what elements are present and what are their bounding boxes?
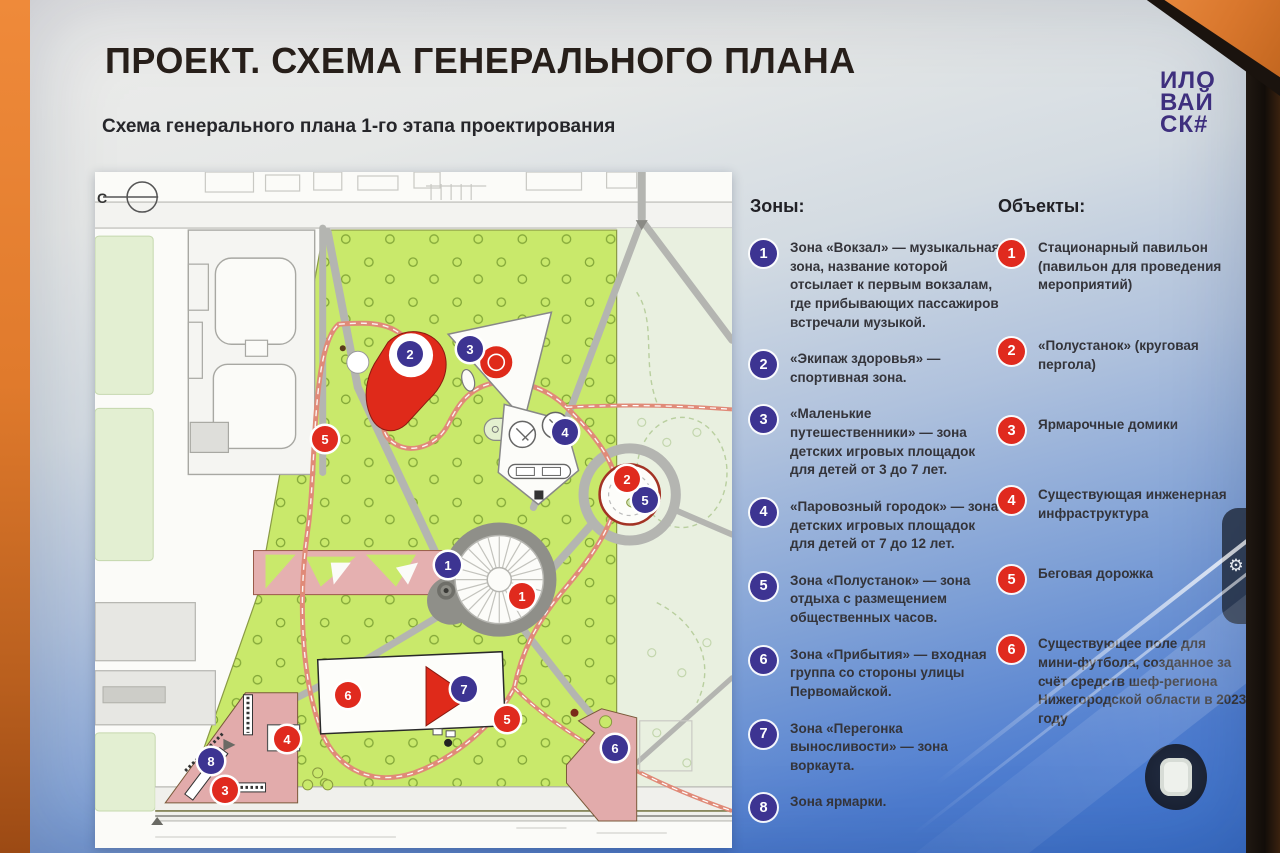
zone-number-badge: 1: [750, 240, 777, 267]
object-description: Стационарный павильон (павильон для пров…: [1038, 239, 1246, 295]
screen-bezel: [1246, 0, 1280, 853]
logo-line-3: СК#: [1160, 114, 1216, 136]
zone-number-badge: 5: [750, 573, 777, 600]
gear-icon: ⚙: [1228, 556, 1243, 576]
object-marker-2: 2: [614, 466, 640, 492]
object-number-badge: 6: [998, 636, 1025, 663]
zone-description: Зона «Перегонка выносливости» — зона вор…: [790, 720, 1000, 776]
zone-number-badge: 4: [750, 499, 777, 526]
zone-number-badge: 7: [750, 721, 777, 748]
zone-marker-1: 1: [435, 552, 461, 578]
home-button[interactable]: [1145, 744, 1207, 810]
legend-object-item: 4 Существующая инженерная инфраструктура: [998, 486, 1246, 523]
object-marker-1: 1: [509, 583, 535, 609]
zone-description: «Паровозный городок» — зона детских игро…: [790, 498, 1000, 554]
zone-description: Зона ярмарки.: [790, 793, 1000, 821]
zone-marker-2: 2: [397, 341, 423, 367]
zone-number-badge: 2: [750, 351, 777, 378]
object-number-badge: 4: [998, 487, 1025, 514]
legend-object-item: 5 Беговая дорожка: [998, 565, 1246, 593]
school-building-block: [188, 230, 314, 474]
zone-description: Зона «Полустанок» — зона отдыха с размещ…: [790, 572, 1000, 628]
object-marker-5: 5: [312, 426, 338, 452]
zone-description: Зона «Вокзал» — музыкальная зона, назван…: [790, 239, 1000, 332]
wall-left: [0, 0, 30, 853]
legend-objects-list: 1 Стационарный павильон (павильон для пр…: [998, 239, 1246, 729]
zone-description: Зона «Прибытия» — входная группа со стор…: [790, 646, 1000, 702]
object-number-badge: 2: [998, 338, 1025, 365]
screen: ПРОЕКТ. СХЕМА ГЕНЕРАЛЬНОГО ПЛАНА Схема г…: [30, 0, 1246, 853]
legend-object-item: 2 «Полустанок» (круговая пергола): [998, 337, 1246, 374]
zone-number-badge: 8: [750, 794, 777, 821]
legend-zone-item: 6 Зона «Прибытия» — входная группа со ст…: [750, 646, 1000, 702]
ilovaisk-logo: ИЛО ВАЙ СК#: [1160, 70, 1216, 136]
object-number-badge: 5: [998, 566, 1025, 593]
legend-object-item: 6 Существующее поле для мини-футбола, со…: [998, 635, 1246, 728]
object-marker-5: 5: [494, 706, 520, 732]
zone-marker-5: 5: [632, 487, 658, 513]
legend-zone-item: 1 Зона «Вокзал» — музыкальная зона, назв…: [750, 239, 1000, 332]
zone-marker-3: 3: [457, 336, 483, 362]
zone-marker-8: 8: [198, 748, 224, 774]
legend-zone-item: 5 Зона «Полустанок» — зона отдыха с разм…: [750, 572, 1000, 628]
zone-number-badge: 3: [750, 406, 777, 433]
svg-text:С: С: [97, 190, 107, 206]
zone-marker-6: 6: [602, 735, 628, 761]
legend-zones: Зоны: 1 Зона «Вокзал» — музыкальная зона…: [750, 196, 1000, 839]
settings-button[interactable]: ⚙: [1222, 508, 1246, 624]
object-description: Беговая дорожка: [1038, 565, 1246, 593]
legend-zone-item: 7 Зона «Перегонка выносливости» — зона в…: [750, 720, 1000, 776]
zone-marker-7: 7: [451, 676, 477, 702]
zone-number-badge: 6: [750, 647, 777, 674]
object-description: Существующее поле для мини-футбола, созд…: [1038, 635, 1246, 728]
legend-zone-item: 3 «Маленькие путешественники» — зона дет…: [750, 405, 1000, 480]
legend-zone-item: 8 Зона ярмарки.: [750, 793, 1000, 821]
photo-frame: ПРОЕКТ. СХЕМА ГЕНЕРАЛЬНОГО ПЛАНА Схема г…: [0, 0, 1280, 853]
legend-zone-item: 2 «Экипаж здоровья» — спортивная зона.: [750, 350, 1000, 387]
object-description: Существующая инженерная инфраструктура: [1038, 486, 1246, 523]
object-number-badge: 1: [998, 240, 1025, 267]
legend-object-item: 1 Стационарный павильон (павильон для пр…: [998, 239, 1246, 295]
legend-object-item: 3 Ярмарочные домики: [998, 416, 1246, 444]
zone-marker-4: 4: [552, 419, 578, 445]
legend-zones-heading: Зоны:: [750, 196, 1000, 217]
legend-objects: Объекты: 1 Стационарный павильон (павиль…: [998, 196, 1246, 771]
object-number-badge: 3: [998, 417, 1025, 444]
zone-description: «Экипаж здоровья» — спортивная зона.: [790, 350, 1000, 387]
legend-objects-heading: Объекты:: [998, 196, 1246, 217]
object-description: Ярмарочные домики: [1038, 416, 1246, 444]
object-description: «Полустанок» (круговая пергола): [1038, 337, 1246, 374]
page-title: ПРОЕКТ. СХЕМА ГЕНЕРАЛЬНОГО ПЛАНА: [105, 40, 885, 82]
object-marker-6: 6: [335, 682, 361, 708]
page-subtitle: Схема генерального плана 1-го этапа прое…: [102, 116, 615, 138]
home-icon: [1160, 758, 1192, 796]
esplanade: [253, 551, 442, 595]
object-marker-3: 3: [212, 777, 238, 803]
master-plan-map: С 123456781234556: [95, 172, 732, 848]
legend-zones-list: 1 Зона «Вокзал» — музыкальная зона, назв…: [750, 239, 1000, 821]
object-marker-4: 4: [274, 726, 300, 752]
legend-zone-item: 4 «Паровозный городок» — зона детских иг…: [750, 498, 1000, 554]
zone-description: «Маленькие путешественники» — зона детск…: [790, 405, 1000, 480]
